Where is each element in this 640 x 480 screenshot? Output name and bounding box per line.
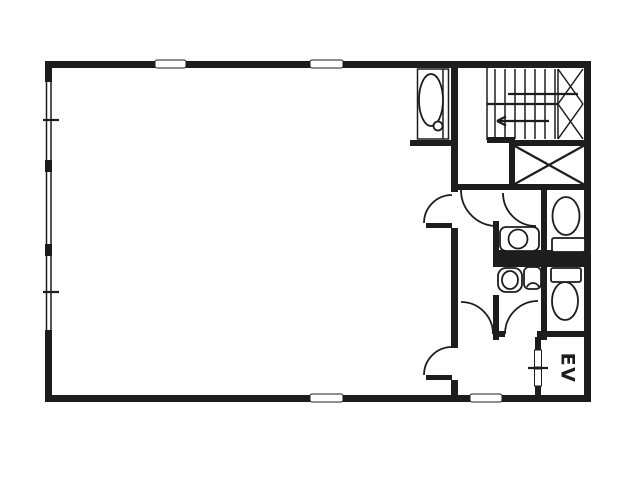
stair-direction-arrow	[497, 94, 578, 126]
wash-basin-counter	[500, 227, 539, 251]
toilet-upper	[552, 197, 585, 252]
left-window-band	[43, 82, 59, 330]
toilet-lower	[551, 268, 581, 320]
upper-washroom-door	[503, 193, 536, 226]
lower-washroom	[498, 267, 541, 292]
elevator-hall-door	[461, 302, 493, 334]
wash-basin	[498, 268, 522, 292]
main-room-door-upper	[424, 195, 452, 228]
elevator-door	[528, 350, 548, 386]
lower-washroom-door	[505, 301, 538, 334]
slop-sink-fixture	[419, 74, 443, 131]
main-room-door-lower	[424, 347, 452, 380]
lower-wc	[551, 268, 581, 320]
utility-sink-closet	[418, 69, 449, 139]
upper-wc	[552, 197, 585, 252]
corridor-door	[461, 190, 497, 226]
upper-washroom	[500, 227, 539, 251]
elevator-shaft: EV	[528, 337, 579, 402]
hand-sink	[524, 267, 541, 289]
shaft-box	[509, 140, 588, 190]
floor-plan: EV	[0, 0, 640, 480]
floor-plan-drawing: EV	[0, 0, 640, 480]
elevator-label: EV	[557, 353, 579, 384]
stairwell	[487, 68, 583, 140]
